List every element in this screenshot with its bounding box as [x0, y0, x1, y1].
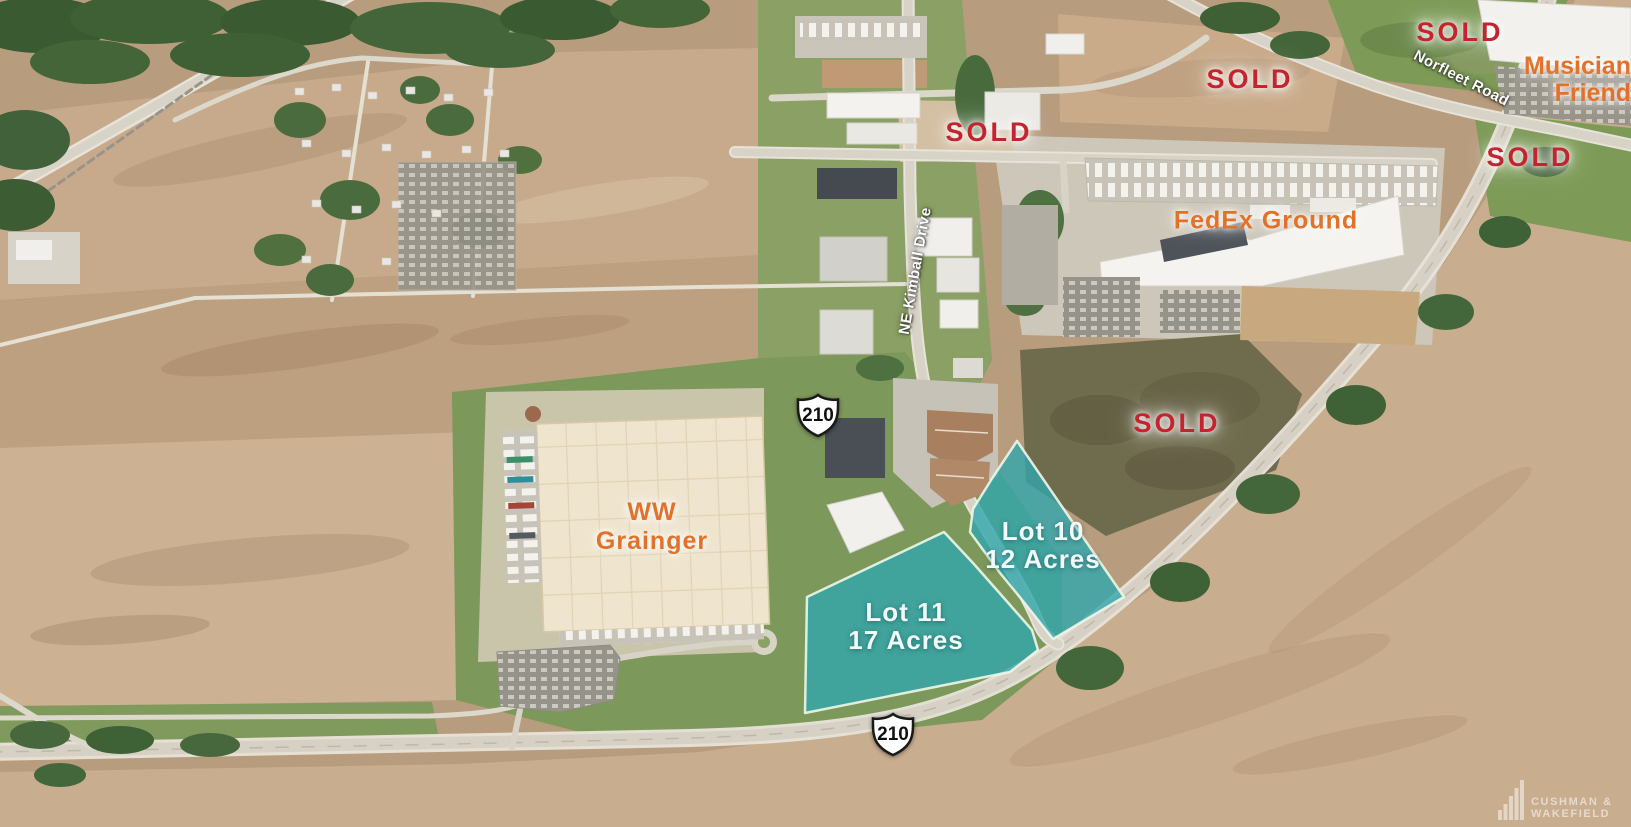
musician-friend-label-line2: Friend [1524, 80, 1631, 107]
ww-grainger-label: WW Grainger [596, 498, 708, 556]
sold-label-4: SOLD [1486, 143, 1573, 173]
cushman-wakefield-logo-icon [1498, 780, 1524, 820]
route-210-number: 210 [794, 405, 842, 427]
lot-11-size: 17 Acres [848, 626, 963, 654]
route-210-shield-south: 210 [869, 711, 917, 757]
lot-10-size: 12 Acres [985, 545, 1100, 573]
fedex-ground-label: FedEx Ground [1174, 207, 1358, 235]
lot-10-label: Lot 10 12 Acres [985, 517, 1100, 573]
sold-label-1: SOLD [1416, 18, 1503, 48]
watermark-text: CUSHMAN & WAKEFIELD [1531, 796, 1613, 820]
ww-grainger-label-line2: Grainger [596, 527, 708, 556]
ww-grainger-label-line1: WW [596, 498, 708, 527]
sold-label-2: SOLD [1206, 65, 1293, 95]
aerial-map: SOLD SOLD SOLD SOLD SOLD FedEx Ground WW… [0, 0, 1631, 827]
route-210-number: 210 [869, 724, 917, 746]
cushman-wakefield-watermark: CUSHMAN & WAKEFIELD [1498, 780, 1613, 820]
musician-friend-label: Musician Friend [1524, 53, 1631, 107]
watermark-line2: WAKEFIELD [1531, 808, 1613, 820]
sold-label-3: SOLD [945, 118, 1032, 148]
lot-11-name: Lot 11 [848, 598, 963, 626]
watermark-line1: CUSHMAN & [1531, 796, 1613, 808]
musician-friend-label-line1: Musician [1524, 53, 1631, 80]
lot-10-name: Lot 10 [985, 517, 1100, 545]
route-210-shield-north: 210 [794, 392, 842, 438]
sold-label-5: SOLD [1133, 409, 1220, 439]
lot-11-label: Lot 11 17 Acres [848, 598, 963, 654]
